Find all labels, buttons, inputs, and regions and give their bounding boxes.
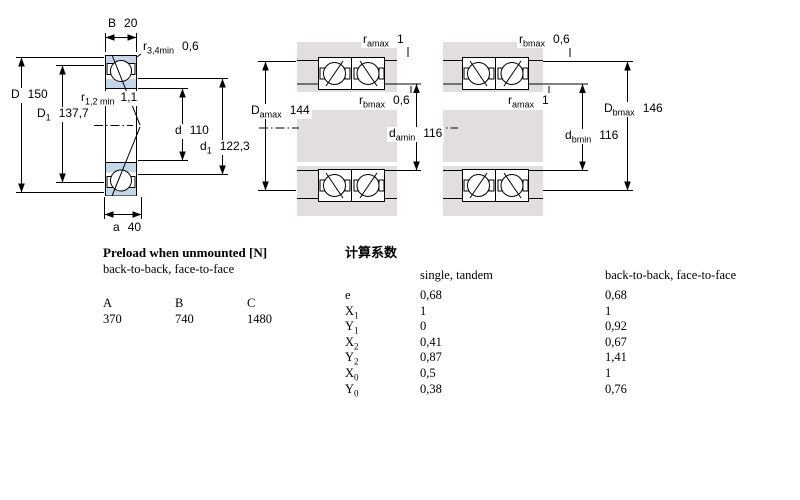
factor-symbol: X0 — [345, 366, 420, 382]
factors-col2-header: back-to-back, face-to-face — [605, 269, 795, 288]
factor-symbol: Y0 — [345, 382, 420, 398]
preload-col-header: A — [103, 295, 175, 311]
dim-Damax-label: Damax144 — [249, 104, 312, 119]
calculation-factors-section: 计算系数 single, tandem back-to-back, face-t… — [345, 246, 795, 397]
shaft-block — [443, 110, 543, 162]
dim-a-label: a40 — [111, 221, 143, 236]
preload-col-header: B — [175, 295, 247, 311]
factor-symbol: e — [345, 288, 420, 304]
dim-ramax-label-2: ramax1 — [506, 94, 551, 109]
dim-Damax-lines — [258, 62, 296, 191]
factor-value-btb: 0,67 — [605, 335, 795, 351]
factor-value-btb: 1,41 — [605, 350, 795, 366]
factor-value-btb: 0,76 — [605, 382, 795, 398]
dim-D1-lines — [56, 66, 104, 183]
factor-value-btb: 1 — [605, 366, 795, 382]
bearing-datasheet-page: B20 r3,4min0,6 D150 D1137,7 r1,2 min1,1 … — [0, 0, 800, 500]
factor-value-single: 0,68 — [420, 288, 605, 304]
factor-symbol: Y2 — [345, 350, 420, 366]
factor-symbol: X1 — [345, 304, 420, 320]
preload-table: A B C 370 740 1480 — [103, 295, 327, 327]
dim-d-label: d110 — [173, 124, 211, 139]
dim-damin-label: damin116 — [387, 127, 444, 142]
factor-value-single: 0,41 — [420, 335, 605, 351]
dim-a-lines — [105, 197, 142, 219]
factor-value-single: 1 — [420, 304, 605, 320]
factor-value-btb: 0,92 — [605, 319, 795, 335]
dim-Dbmax-label: Dbmax146 — [602, 102, 665, 117]
dim-D-label: D150 — [9, 88, 50, 103]
factor-value-single: 0,38 — [420, 382, 605, 398]
factor-symbol: Y1 — [345, 319, 420, 335]
shaft-block — [297, 110, 397, 162]
factors-table: single, tandem back-to-back, face-to-fac… — [345, 269, 795, 397]
factors-col1-header: single, tandem — [420, 269, 605, 288]
dim-dbmin-label: dbmin116 — [563, 129, 620, 144]
dim-rbmax-label-1: rbmax0,6 — [357, 94, 412, 109]
dim-D-lines — [16, 58, 104, 193]
dim-rbmax-label-2: rbmax0,6 — [517, 33, 572, 48]
preload-title: Preload when unmounted [N] — [103, 246, 327, 260]
factor-value-btb: 0,68 — [605, 288, 795, 304]
factor-symbol: X2 — [345, 335, 420, 351]
preload-value: 1480 — [247, 311, 327, 327]
factors-title: 计算系数 — [345, 246, 795, 260]
preload-section: Preload when unmounted [N] back-to-back,… — [103, 246, 327, 327]
dim-D1-label: D1137,7 — [35, 107, 91, 122]
factor-value-single: 0,87 — [420, 350, 605, 366]
preload-col-header: C — [247, 295, 327, 311]
dim-ramax-label-1: ramax1 — [361, 33, 406, 48]
factor-value-single: 0 — [420, 319, 605, 335]
dim-Dbmax-lines — [543, 62, 633, 191]
factor-value-single: 0,5 — [420, 366, 605, 382]
dim-B-lines — [106, 33, 137, 52]
dim-r12-label: r1,2 min1,1 — [79, 91, 139, 106]
dim-r34-label: r3,4min0,6 — [141, 40, 201, 55]
preload-value: 370 — [103, 311, 175, 327]
preload-subtitle: back-to-back, face-to-face — [103, 263, 327, 276]
factor-value-btb: 1 — [605, 304, 795, 320]
preload-value: 740 — [175, 311, 247, 327]
dim-d1-label: d1122,3 — [198, 140, 252, 155]
dim-B-label: B20 — [106, 17, 139, 32]
